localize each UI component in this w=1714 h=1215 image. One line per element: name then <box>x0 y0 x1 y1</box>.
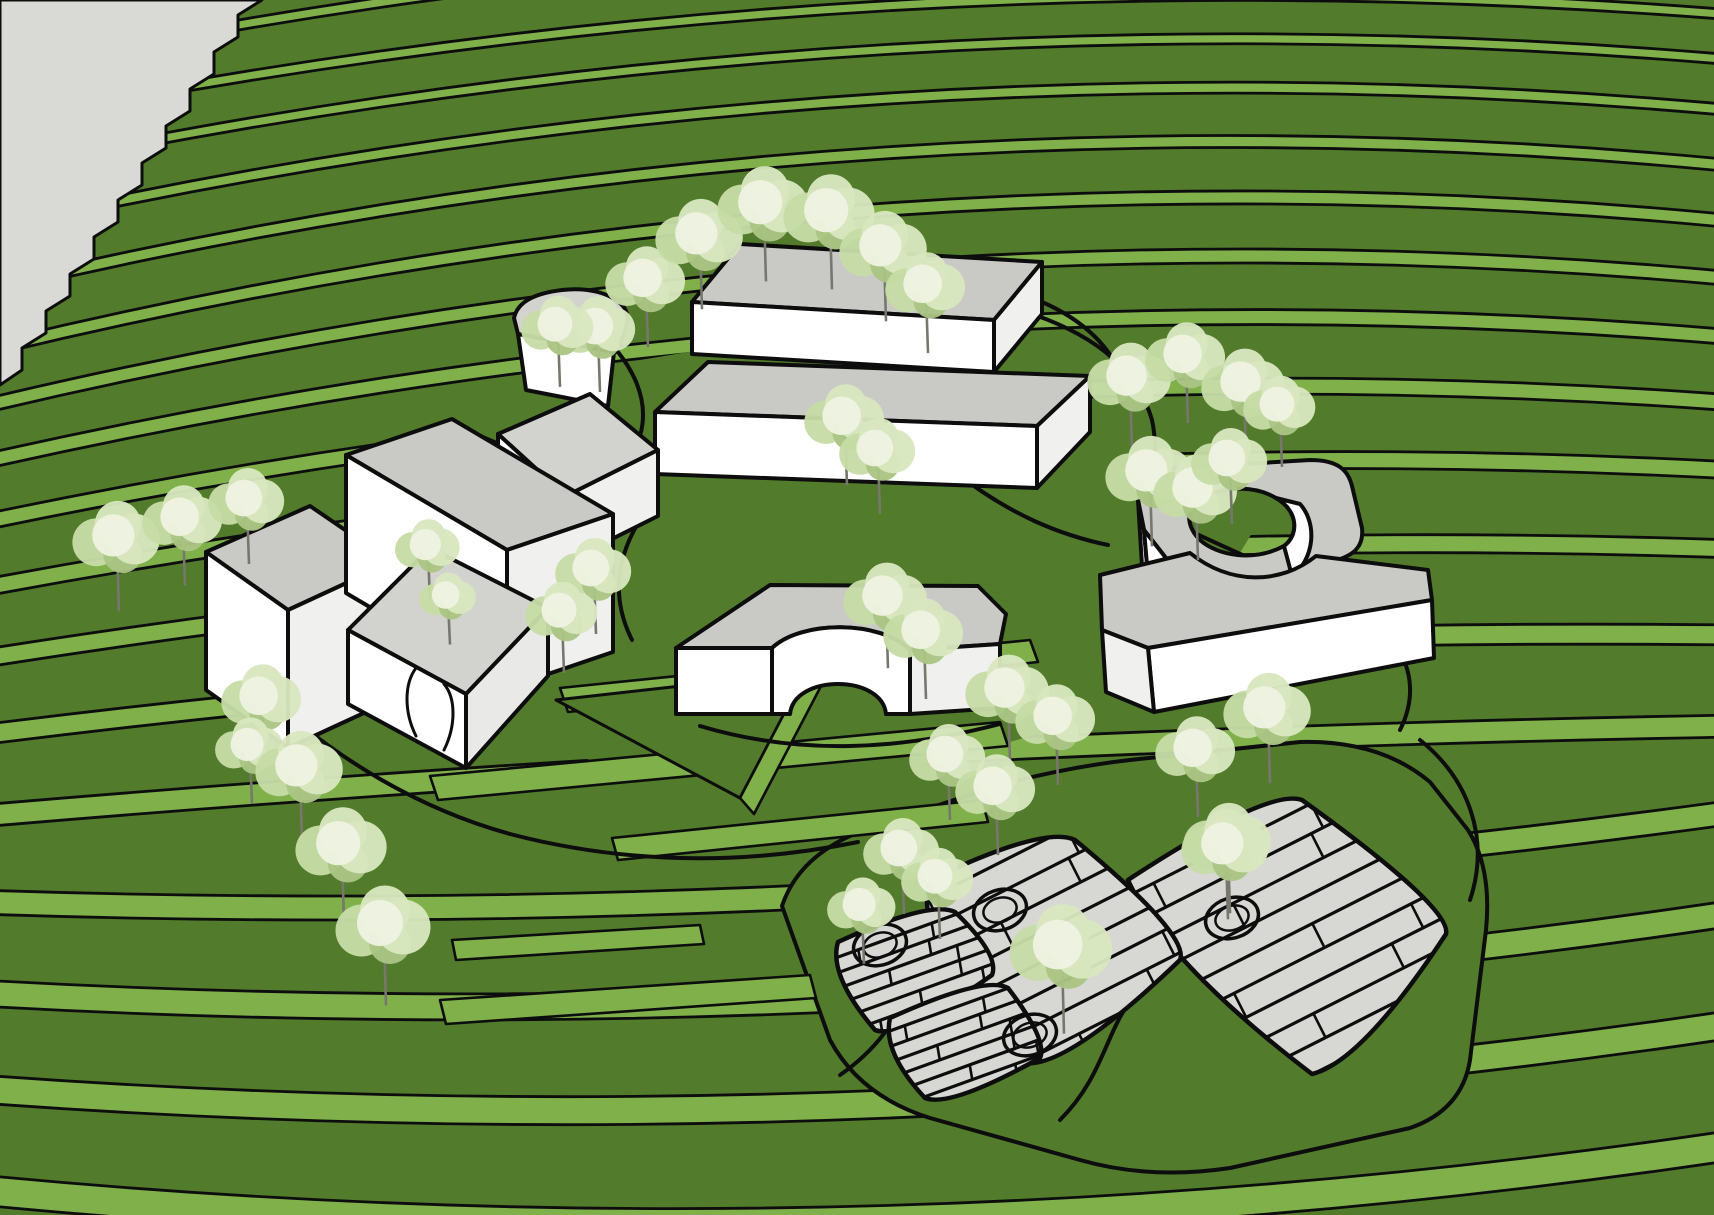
tree-canopy <box>160 497 199 536</box>
tree-canopy <box>623 258 662 297</box>
tree-canopy <box>1106 355 1146 395</box>
tree-canopy <box>92 514 134 556</box>
tree-canopy <box>903 264 942 303</box>
tree-canopy <box>901 610 940 649</box>
tree-canopy <box>822 396 861 435</box>
building-arch-pavilion-mass <box>676 648 772 714</box>
tree-canopy <box>859 224 901 266</box>
tree-canopy <box>1173 728 1212 767</box>
tree-canopy <box>316 821 360 865</box>
tree-canopy <box>843 888 876 921</box>
tree-canopy <box>675 212 717 254</box>
tree-canopy <box>432 581 460 609</box>
tree-canopy <box>410 529 441 560</box>
tree-canopy <box>231 728 264 761</box>
tree-canopy <box>357 900 403 946</box>
tree-canopy <box>862 575 902 615</box>
site-model-screenshot <box>0 0 1714 1215</box>
tree-canopy <box>572 550 609 587</box>
tree-canopy <box>738 180 782 224</box>
tree-canopy <box>1208 440 1245 477</box>
tree-canopy <box>804 188 848 232</box>
tree-canopy <box>1033 920 1083 970</box>
tree-canopy <box>973 766 1012 805</box>
tree-canopy <box>856 430 893 467</box>
tree-canopy <box>275 744 317 786</box>
tree-canopy <box>1033 696 1072 735</box>
tree-canopy <box>984 667 1024 707</box>
render-canvas <box>0 0 1714 1215</box>
tree-canopy <box>239 676 278 715</box>
tree-canopy <box>917 859 952 894</box>
tree-canopy <box>541 593 576 628</box>
tree-canopy <box>1163 334 1202 373</box>
tree-canopy <box>1201 822 1243 864</box>
tree-canopy <box>880 830 917 867</box>
tree-canopy <box>926 736 963 773</box>
tree-canopy <box>1243 686 1285 728</box>
tree-canopy <box>225 480 262 517</box>
tree-canopy <box>1259 387 1294 422</box>
tree-canopy <box>537 307 572 342</box>
